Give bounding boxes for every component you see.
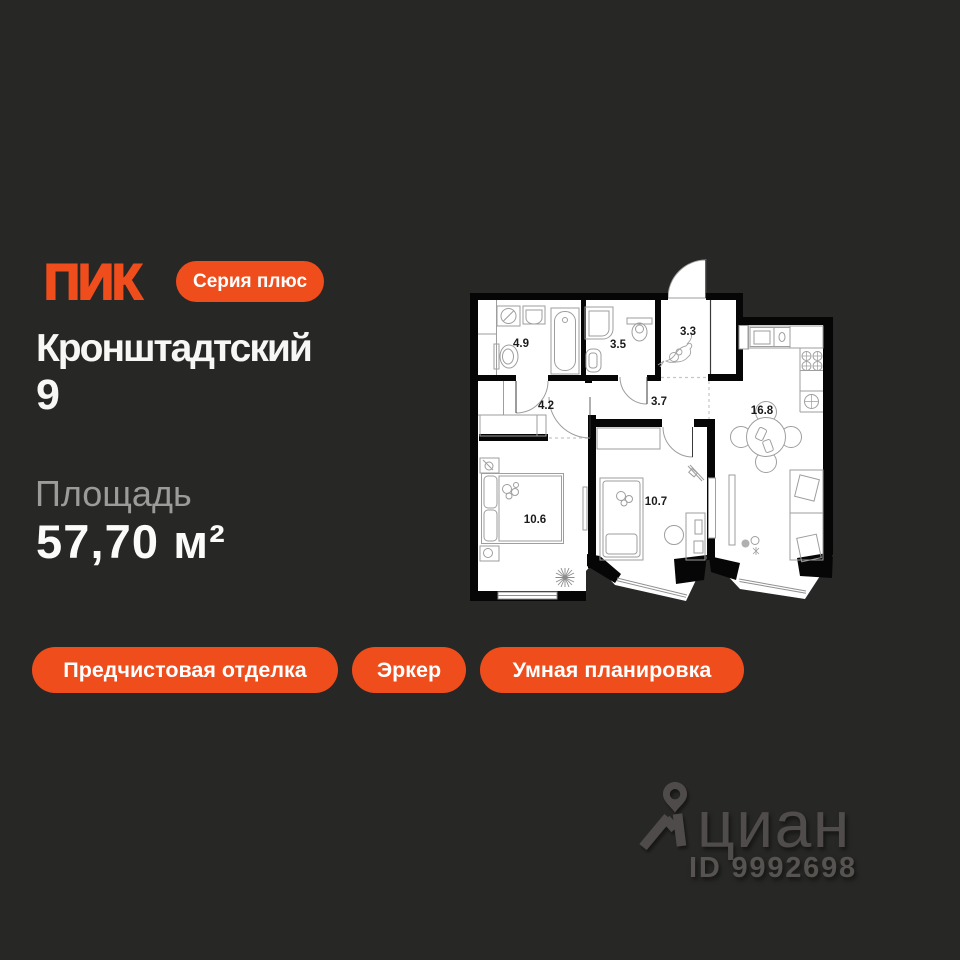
svg-text:4.9: 4.9	[513, 338, 529, 350]
svg-text:10.7: 10.7	[645, 496, 667, 508]
svg-text:4.2: 4.2	[538, 400, 554, 412]
svg-text:10.6: 10.6	[524, 514, 546, 526]
svg-text:16.8: 16.8	[751, 405, 774, 417]
svg-text:3.5: 3.5	[610, 339, 627, 351]
svg-text:3.7: 3.7	[651, 396, 667, 408]
svg-text:3.3: 3.3	[680, 326, 696, 338]
